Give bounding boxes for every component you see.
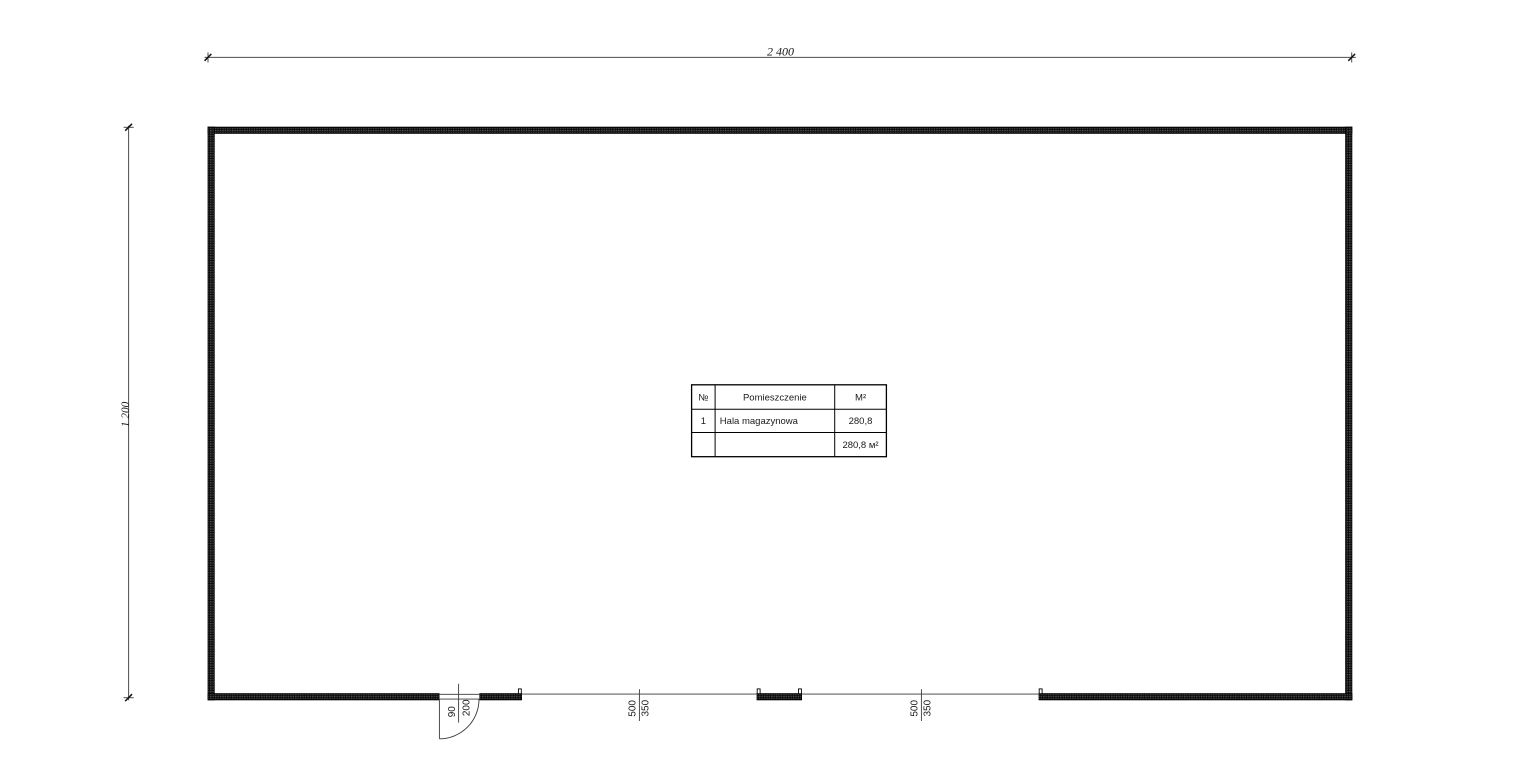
svg-text:350: 350 xyxy=(641,699,652,716)
svg-text:Hala magazynowa: Hala magazynowa xyxy=(720,416,799,427)
svg-text:500: 500 xyxy=(909,700,920,717)
svg-text:280,8: 280,8 xyxy=(849,416,873,427)
svg-text:90: 90 xyxy=(447,706,458,718)
svg-text:1: 1 xyxy=(701,416,706,427)
svg-text:Pomieszczenie: Pomieszczenie xyxy=(743,392,807,403)
svg-text:350: 350 xyxy=(923,699,934,716)
svg-text:№: № xyxy=(698,392,708,403)
svg-text:2 400: 2 400 xyxy=(767,45,794,59)
svg-text:200: 200 xyxy=(461,699,472,716)
svg-text:M²: M² xyxy=(855,392,866,403)
svg-text:500: 500 xyxy=(627,700,638,717)
svg-text:1 200: 1 200 xyxy=(120,401,132,427)
svg-text:280,8 м²: 280,8 м² xyxy=(842,440,878,451)
